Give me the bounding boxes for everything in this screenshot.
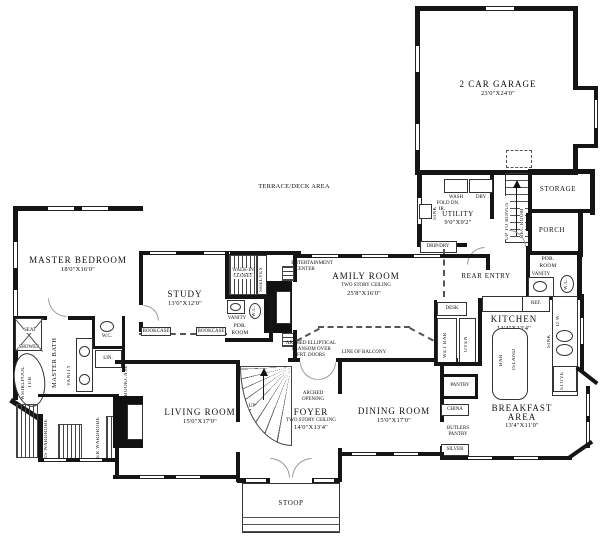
- island-label: ISLAND: [512, 348, 517, 370]
- window: [414, 254, 440, 258]
- firebox: [127, 404, 143, 440]
- window: [486, 6, 514, 11]
- pdr-mid-label-1: PDR.: [234, 324, 247, 330]
- walk-in-closet-label-1: WALK-IN: [232, 268, 253, 273]
- arched-opening-label-2: OPENING: [302, 397, 324, 402]
- dishwasher-label: D.W.: [556, 312, 561, 326]
- balcony-line: [318, 326, 410, 328]
- master-bedroom-dims: 18'0"X16'0": [61, 267, 95, 274]
- entertainment-center-label-2: CENTER: [295, 267, 314, 272]
- kitchen-label: KITCHEN: [491, 315, 538, 324]
- fold-down-ironing-label: FOLD DN.: [437, 201, 460, 206]
- window: [514, 456, 538, 460]
- vanity-sink: [79, 374, 90, 385]
- french-door-arc: [300, 362, 318, 380]
- dining-room-label: DINING ROOM: [358, 407, 430, 416]
- living-room-dims: 15'0"X17'0": [183, 419, 217, 426]
- toilet: [100, 321, 114, 332]
- wall: [225, 295, 269, 299]
- balcony-line-right: [409, 327, 434, 341]
- utility-dims: 9'0"X9'2": [444, 220, 471, 227]
- wall: [577, 251, 582, 300]
- washer-label: WASH: [449, 195, 463, 200]
- shelves-label: SHELVES: [259, 258, 264, 292]
- wall: [573, 6, 578, 88]
- window: [44, 458, 66, 462]
- dryer-label: DRY: [476, 195, 486, 200]
- tub-label: TUB: [28, 372, 33, 388]
- window: [362, 254, 388, 258]
- stair-arrow-head: [513, 180, 521, 188]
- family-room-dims: 25'8"X16'0": [347, 291, 381, 298]
- window: [13, 242, 18, 268]
- kitchen-sink: [556, 344, 573, 356]
- transom-label-2: TRANSOM OVER: [291, 347, 330, 352]
- whirlpool-label: WHIRLPOOL: [21, 362, 26, 400]
- window: [312, 254, 338, 258]
- wall: [440, 374, 478, 377]
- stoop-step: [242, 517, 340, 518]
- window: [580, 318, 584, 344]
- seat-label: SEAT: [24, 328, 36, 333]
- window: [468, 456, 492, 460]
- stoop-step: [242, 524, 340, 525]
- wall: [92, 346, 125, 349]
- attic-access: [506, 150, 532, 168]
- up-label: UP: [249, 404, 255, 409]
- vanity-sink: [79, 346, 90, 357]
- stair-arrow-head: [260, 368, 268, 376]
- wall: [38, 394, 118, 397]
- desk-label: DESK: [445, 306, 458, 311]
- study-label: STUDY: [167, 290, 202, 299]
- family-room-label: AMILY ROOM: [332, 272, 400, 281]
- wall: [442, 456, 572, 460]
- wall: [434, 362, 482, 366]
- oven-label: OVEN: [464, 330, 469, 352]
- storage-label: STORAGE: [540, 186, 576, 193]
- wall: [225, 338, 273, 342]
- foyer-label: FOYER: [294, 408, 329, 417]
- wall: [288, 358, 300, 362]
- silver-label: SILVER: [446, 447, 463, 452]
- wall: [440, 396, 478, 399]
- rear-entry-label: REAR ENTRY: [461, 273, 510, 280]
- wall: [486, 254, 490, 270]
- window: [48, 206, 74, 211]
- study-dims: 13'0"X12'0": [168, 301, 202, 308]
- breakfast-label-2: AREA: [508, 413, 537, 422]
- bar-label: BAR: [499, 352, 504, 366]
- floor-plan: 2 CAR GARAGE 23'0"X24'0" WASH DRY FOLD D…: [0, 0, 600, 557]
- window: [352, 452, 376, 456]
- arched-opening-label-1: ARCHED: [303, 391, 324, 396]
- sink-label: SINK: [433, 204, 438, 220]
- wet-bar-label: WET BAR: [443, 328, 448, 358]
- bookcase-label: BOOKCASE: [198, 329, 225, 334]
- dining-room-dims: 15'0"X17'0": [377, 418, 411, 425]
- wc-label: W.C.: [564, 278, 569, 290]
- stoop-step: [242, 531, 340, 532]
- french-door-arc: [318, 362, 336, 380]
- living-room-label: LIVING ROOM: [164, 408, 235, 417]
- master-bedroom-label: MASTER BEDROOM: [29, 256, 127, 265]
- butlers-pantry-label-2: PANTRY: [448, 432, 467, 437]
- utility-sink: [419, 204, 432, 219]
- firebox: [276, 291, 291, 324]
- stair-arrow-line: [263, 376, 264, 400]
- terrace-label: TERRACE/DECK AREA: [258, 184, 329, 191]
- vanity-sink: [230, 303, 241, 311]
- kitchen-sink: [556, 330, 573, 342]
- washer: [444, 179, 468, 193]
- wall: [338, 358, 342, 394]
- pantry-label: PANTRY: [450, 383, 469, 388]
- stoop-label: STOOP: [278, 500, 303, 507]
- wall: [139, 251, 143, 305]
- stair-arrow-line: [516, 188, 517, 236]
- wall: [576, 366, 599, 385]
- garage-label: 2 CAR GARAGE: [459, 80, 536, 89]
- window: [415, 46, 420, 72]
- stove-label: STOVE: [560, 368, 565, 390]
- pdr-right-label-2: ROOM: [539, 264, 556, 270]
- dryer: [469, 179, 493, 193]
- family-room-note: TWO STORY CEILING: [341, 283, 391, 288]
- bookcase-label: BOOKCASE: [124, 366, 129, 396]
- foyer-dims: 14'0"X13'4": [294, 425, 328, 432]
- window: [150, 251, 176, 255]
- drip-dry-label: DRIP/DRY: [426, 244, 449, 249]
- stove: [553, 366, 577, 392]
- window: [176, 475, 200, 479]
- entertainment-shelf: [282, 266, 294, 281]
- breakfast-dims: 13'4"X11'0": [505, 423, 539, 430]
- wall: [13, 206, 143, 211]
- door-arc: [48, 298, 67, 317]
- wc-label: W.C.: [102, 334, 112, 339]
- linen-label: LIN.: [103, 356, 113, 361]
- wall: [526, 213, 530, 231]
- window: [13, 290, 18, 316]
- curved-staircase: [240, 366, 292, 446]
- his-wardrobe-label: HIS WARDROBE: [44, 412, 49, 462]
- sink-label: SINK: [547, 330, 552, 348]
- ref-label: REF.: [531, 301, 541, 306]
- pdr-right-label-1: PDR.: [542, 257, 555, 263]
- pdr-mid-label-2: ROOM: [231, 331, 248, 337]
- wardrobe-hanging: [16, 404, 38, 458]
- door-arc: [143, 305, 159, 321]
- utility-label: UTILITY: [442, 211, 474, 218]
- wall: [528, 169, 595, 174]
- foyer-note: TWO STORY CEILING: [286, 418, 336, 423]
- wall: [526, 251, 581, 255]
- wall: [269, 295, 273, 342]
- transom-label-3: FRT. DOORS: [297, 353, 325, 358]
- front-door-arc: [292, 458, 312, 478]
- wall: [68, 316, 94, 320]
- wardrobe-hanging: [58, 424, 82, 460]
- vanity-label: VANITY: [67, 360, 72, 386]
- window: [394, 452, 418, 456]
- kitchen-island: [492, 328, 528, 400]
- shower-label: SHOWER: [18, 345, 39, 350]
- stoop: [242, 483, 340, 533]
- window: [594, 100, 598, 128]
- entertainment-center-label-1: ENTERTAINMENT: [291, 261, 333, 266]
- vanity-label: VANITY: [228, 316, 247, 321]
- rec-room-label: REC ROOM: [520, 202, 525, 238]
- master-bath-label: MASTER BATH: [52, 336, 59, 388]
- walk-in-closet-label-2: CLOSET: [234, 274, 253, 279]
- window: [415, 124, 420, 150]
- bookcase-label: BOOKCASE: [143, 329, 170, 334]
- window: [82, 206, 108, 211]
- garage-dims: 23'0"X24'0": [481, 91, 515, 98]
- wc-label: W.C.: [252, 305, 257, 317]
- her-wardrobe-label: HER WARDROBE: [96, 410, 101, 462]
- porch-label: PORCH: [539, 227, 565, 234]
- window: [80, 458, 102, 462]
- butlers-pantry-label-1: BUTLERS: [447, 426, 469, 431]
- wall: [115, 360, 239, 364]
- china-label: CHINA: [447, 407, 463, 412]
- transom-label-1: ARCHED ELLIPTICAL: [286, 341, 336, 346]
- wall: [38, 414, 43, 462]
- window: [586, 394, 590, 416]
- line-of-balcony-label: LINE OF BALCONY: [342, 350, 386, 355]
- front-door-arc: [270, 458, 290, 478]
- balcony-line-left: [296, 328, 320, 342]
- vanity-sink: [533, 281, 547, 292]
- window: [140, 475, 164, 479]
